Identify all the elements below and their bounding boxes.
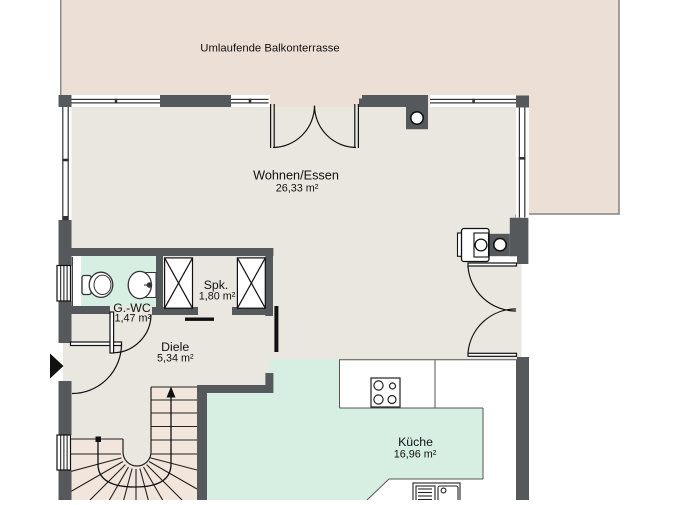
svg-text:Wohnen/Essen: Wohnen/Essen <box>253 169 339 183</box>
svg-text:Küche: Küche <box>398 435 433 449</box>
svg-text:26,33 m²: 26,33 m² <box>276 183 319 195</box>
svg-text:1,80 m²: 1,80 m² <box>199 291 236 303</box>
svg-text:1,47 m²: 1,47 m² <box>114 312 151 324</box>
svg-text:5,34 m²: 5,34 m² <box>157 353 194 365</box>
svg-text:Umlaufende Balkonterrasse: Umlaufende Balkonterrasse <box>200 43 339 55</box>
svg-text:16,96 m²: 16,96 m² <box>394 449 437 461</box>
